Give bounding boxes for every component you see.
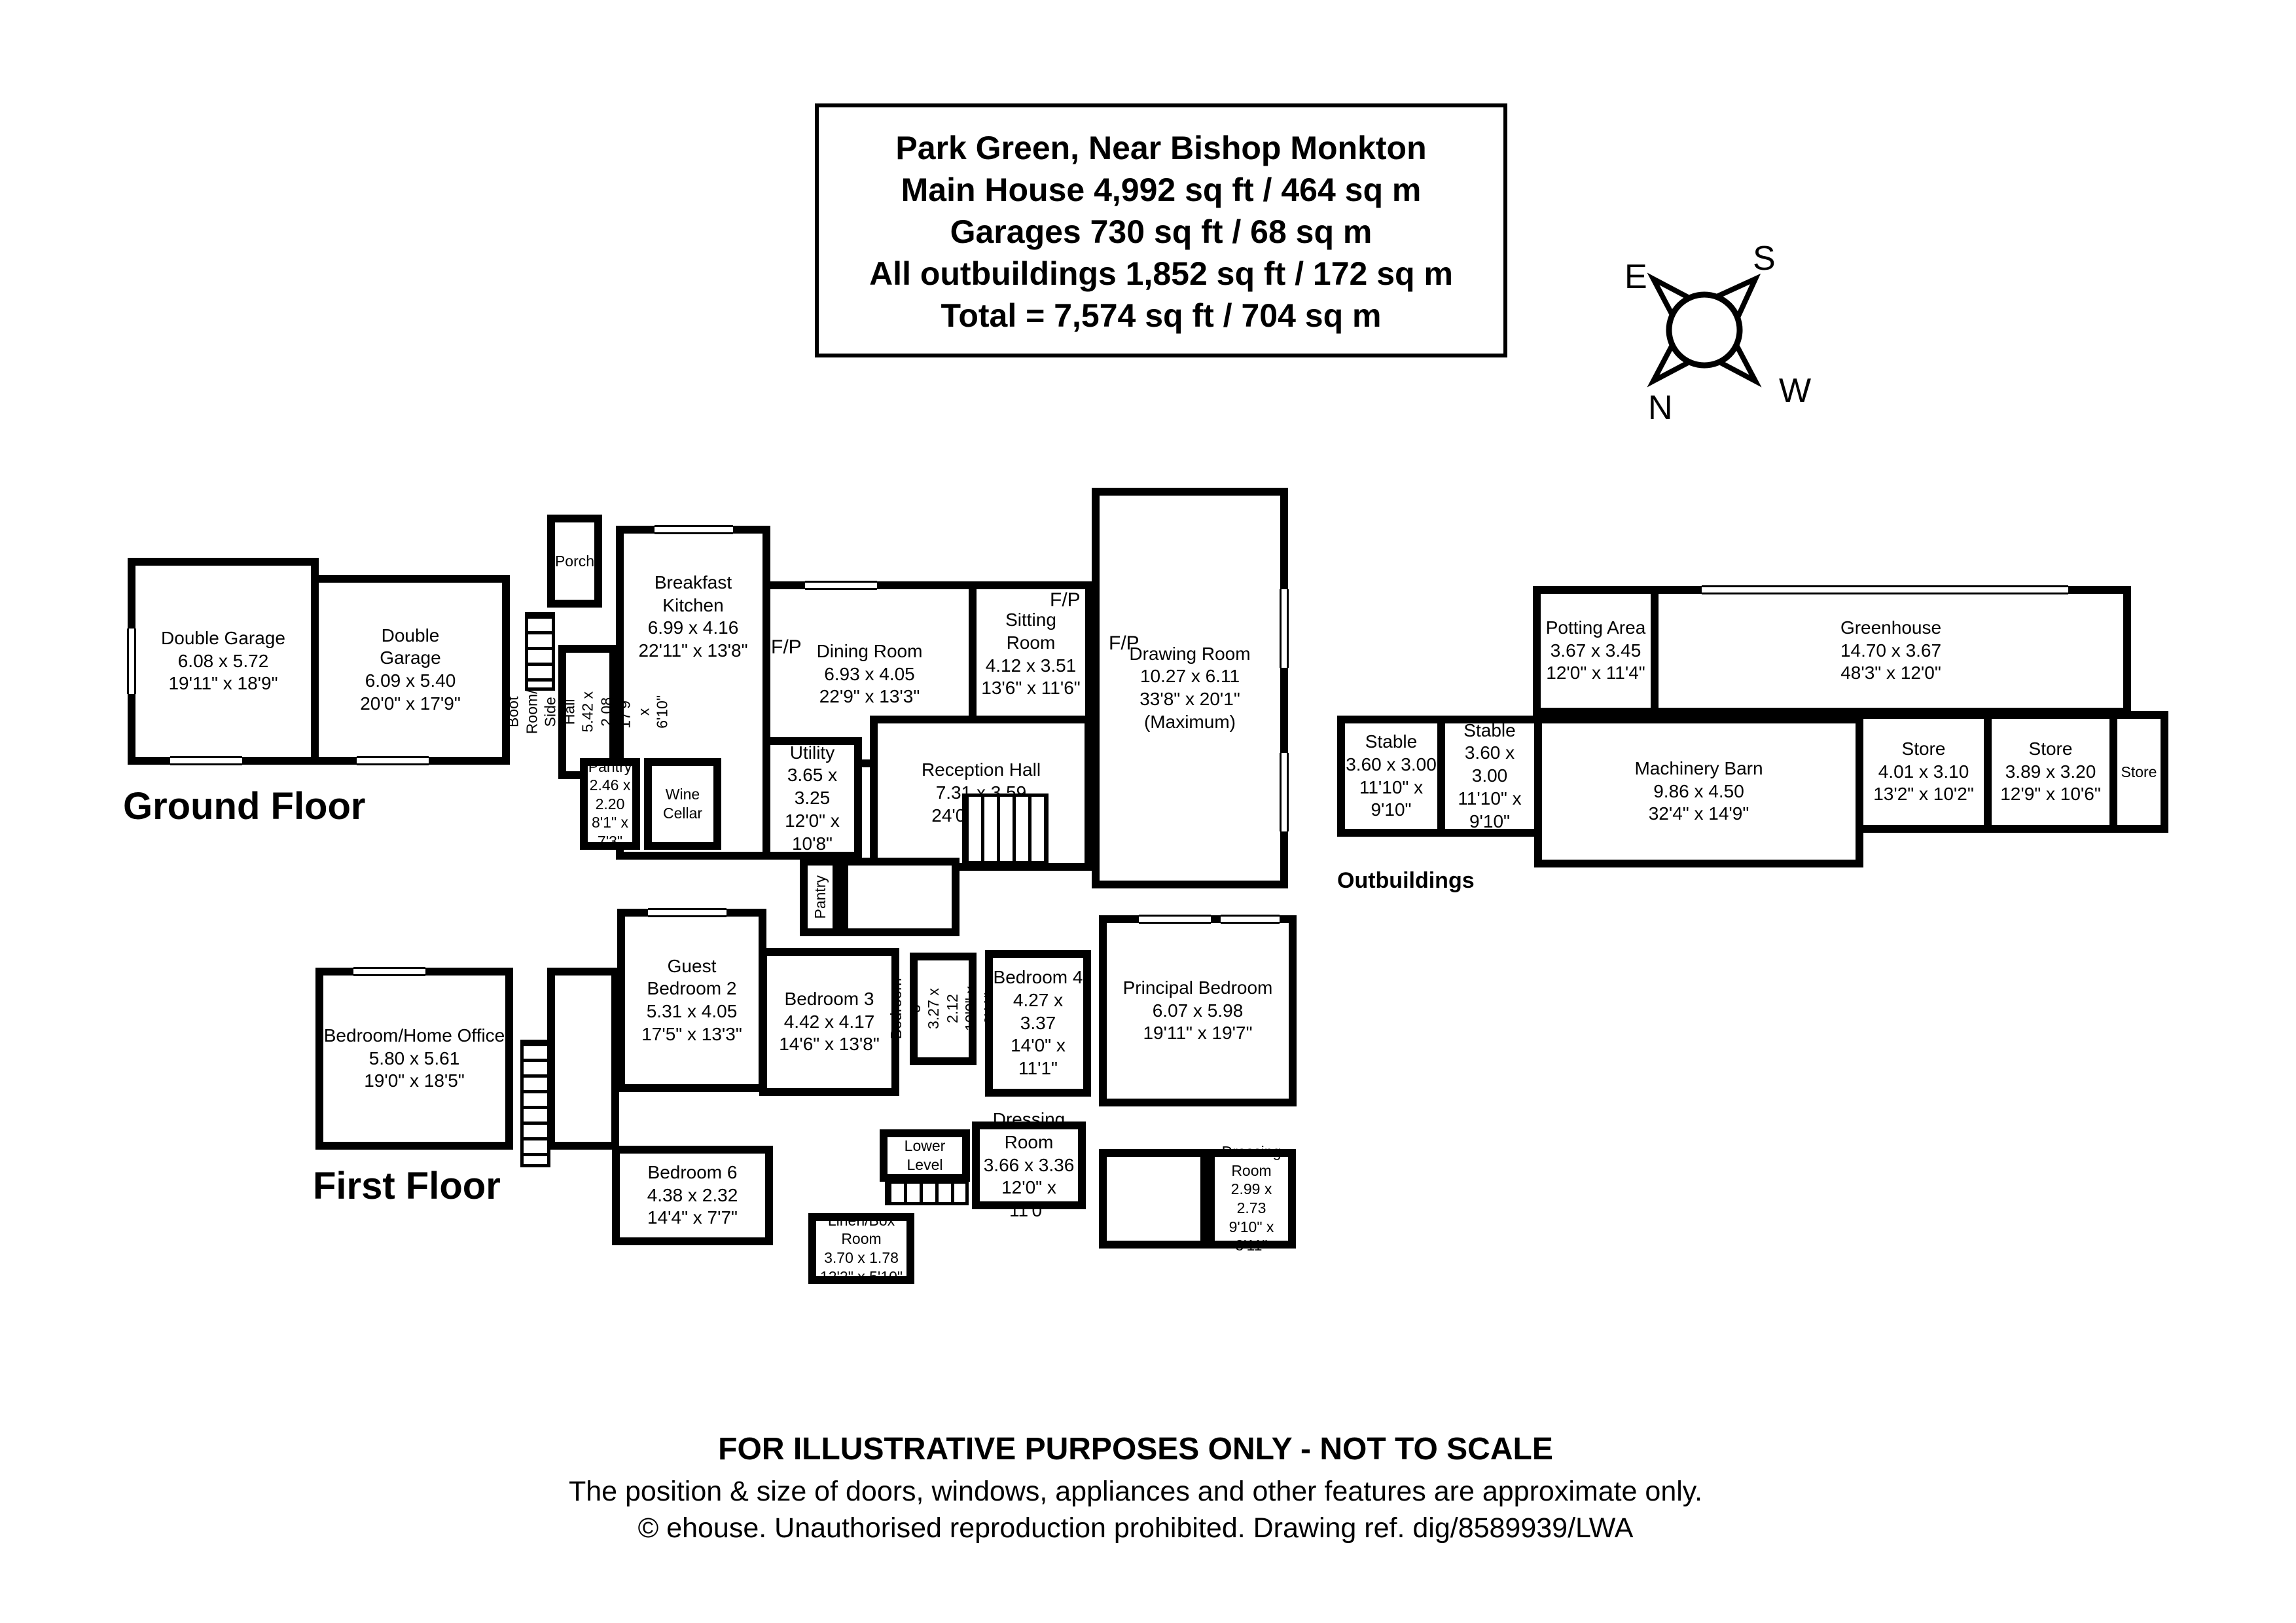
window xyxy=(1702,585,2068,594)
staircase xyxy=(525,612,555,691)
compass-west-label: W xyxy=(1779,372,1811,410)
room-dim-metric: 2.46 x 2.20 xyxy=(588,776,632,813)
room-bedroom-3: Bedroom 3 4.42 x 4.17 14'6" x 13'8" xyxy=(759,948,899,1096)
room-dim-metric: 5.80 x 5.61 xyxy=(324,1048,505,1070)
staircase xyxy=(520,1040,550,1167)
room-name: Linen/Box Room xyxy=(816,1211,906,1249)
window xyxy=(805,581,877,590)
room-stable-1: Stable 3.60 x 3.00 11'10" x 9'10" xyxy=(1337,716,1445,837)
room-dim-metric: 6.93 x 4.05 xyxy=(817,663,923,686)
room-bedroom-6: Bedroom 6 4.38 x 2.32 14'4" x 7'7" xyxy=(612,1146,773,1245)
first-floor-label: First Floor xyxy=(313,1164,501,1208)
fireplace-label: F/P xyxy=(771,636,802,659)
room-dressing-room-2: Dressing Room 2.99 x 2.73 9'10" x 8'11" xyxy=(1207,1149,1296,1249)
room-name: Store xyxy=(1873,738,1974,761)
room-utility: Utility 3.65 x 3.25 12'0" x 10'8" xyxy=(762,737,862,860)
room-bathroom xyxy=(547,968,619,1150)
room-dim-imperial: 11'10" x 9'10" xyxy=(1345,776,1437,822)
room-ensuite xyxy=(1099,1149,1208,1249)
room-dim-imperial: 12'9" x 10'6" xyxy=(2000,783,2101,806)
outbuildings-area: All outbuildings 1,852 sq ft / 172 sq m xyxy=(819,253,1503,295)
room-name: Dressing Room xyxy=(980,1108,1078,1154)
window xyxy=(1280,753,1289,831)
room-principal-bedroom: Principal Bedroom 6.07 x 5.98 19'11" x 1… xyxy=(1099,915,1297,1106)
room-dim-metric: 4.42 x 4.17 xyxy=(779,1011,880,1034)
room-dim-metric: 6.08 x 5.72 xyxy=(161,650,285,673)
room-dim-imperial: 14'4" x 7'7" xyxy=(647,1207,738,1230)
room-pantry-2: Pantry xyxy=(800,858,840,936)
room-dressing-room-1: Dressing Room 3.66 x 3.36 12'0" x 11'0" xyxy=(972,1122,1086,1209)
room-dim-metric: 4.01 x 3.10 xyxy=(1873,761,1974,784)
compass-north-label: N xyxy=(1648,389,1673,427)
footer-disclaimer-line1: FOR ILLUSTRATIVE PURPOSES ONLY - NOT TO … xyxy=(0,1431,2271,1467)
room-name: Boot Room/ Side Hall xyxy=(504,690,579,735)
room-greenhouse: Greenhouse 14.70 x 3.67 48'3" x 12'0" xyxy=(1651,586,2131,716)
room-name: Bedroom 4 xyxy=(993,966,1083,989)
room-name: Bedroom 6 xyxy=(647,1161,738,1184)
room-name: Pantry xyxy=(811,875,830,919)
room-dim-imperial: 12'2" x 5'10" xyxy=(816,1267,906,1286)
room-dim-imperial: 19'11" x 18'9" xyxy=(161,672,285,695)
room-dim-metric: 5.42 x 2.08 xyxy=(579,690,616,735)
room-name: Breakfast Kitchen xyxy=(624,572,762,617)
room-dim-metric: 5.31 x 4.05 xyxy=(641,1000,742,1023)
total-area: Total = 7,574 sq ft / 704 sq m xyxy=(819,295,1503,337)
room-name: Principal Bedroom xyxy=(1123,977,1273,1000)
room-name: Guest Bedroom 2 xyxy=(641,955,742,1000)
room-dim-imperial: 17'5" x 13'3" xyxy=(641,1023,742,1046)
window xyxy=(655,525,733,534)
window xyxy=(1280,589,1289,668)
room-name: Sitting Room xyxy=(981,609,1080,654)
plan-title: Park Green, Near Bishop Monkton xyxy=(819,127,1503,169)
room-double-garage-1: Double Garage 6.08 x 5.72 19'11" x 18'9" xyxy=(128,558,319,765)
room-bedroom-4: Bedroom 4 4.27 x 3.37 14'0" x 11'1" xyxy=(985,950,1091,1097)
room-dim-imperial: 22'9" x 13'3" xyxy=(817,685,923,708)
window xyxy=(1139,915,1211,924)
room-double-garage-2: Double Garage 6.09 x 5.40 20'0" x 17'9" xyxy=(311,575,510,765)
ground-floor-label: Ground Floor xyxy=(123,784,366,828)
room-name: Bedroom 5 xyxy=(887,978,924,1039)
room-name: Utility xyxy=(770,742,854,765)
room-dim-metric: 6.99 x 4.16 xyxy=(624,617,762,640)
room-name: Porch xyxy=(555,552,594,571)
room-dim-metric: 3.70 x 1.78 xyxy=(816,1249,906,1267)
room-dim-imperial: 9'10" x 8'11" xyxy=(1215,1218,1288,1255)
room-dim-imperial: 22'11" x 13'8" xyxy=(624,640,762,663)
room-name: Lower Level xyxy=(905,1137,946,1174)
room-name: Bedroom 3 xyxy=(779,988,880,1011)
window xyxy=(357,756,429,765)
room-dim-note: (Maximum) xyxy=(1129,711,1250,734)
room-dim-metric: 3.66 x 3.36 xyxy=(980,1154,1078,1177)
room-dim-imperial: 14'0" x 11'1" xyxy=(993,1034,1083,1080)
floorplan-canvas: Park Green, Near Bishop Monkton Main Hou… xyxy=(0,0,2296,1623)
room-dim-metric: 3.60 x 3.00 xyxy=(1445,742,1534,787)
room-bedroom-home-office: Bedroom/Home Office 5.80 x 5.61 19'0" x … xyxy=(315,968,513,1150)
footer-disclaimer-line2: The position & size of doors, windows, a… xyxy=(0,1476,2271,1508)
window xyxy=(1221,915,1280,924)
window xyxy=(127,629,136,694)
room-linen-box-room: Linen/Box Room 3.70 x 1.78 12'2" x 5'10" xyxy=(808,1213,914,1284)
room-name: Dressing Room xyxy=(1215,1142,1288,1180)
staircase xyxy=(962,793,1049,864)
room-bedroom-5: Bedroom 5 3.27 x 2.12 10'9" x 6'11" xyxy=(910,953,977,1065)
compass-south-label: S xyxy=(1753,240,1776,278)
fireplace-label: F/P xyxy=(1050,589,1081,611)
room-dim-imperial: 33'8" x 20'1" xyxy=(1129,688,1250,711)
room-name: Double Garage xyxy=(360,625,461,670)
room-name: Machinery Barn xyxy=(1634,757,1763,780)
garages-area: Garages 730 sq ft / 68 sq m xyxy=(819,211,1503,253)
room-name: Store xyxy=(2000,738,2101,761)
window xyxy=(170,756,242,765)
room-dim-metric: 14.70 x 3.67 xyxy=(1840,640,1941,663)
main-house-area: Main House 4,992 sq ft / 464 sq m xyxy=(819,169,1503,211)
room-dim-imperial: 48'3" x 12'0" xyxy=(1840,662,1941,685)
room-name: Greenhouse xyxy=(1840,617,1941,640)
room-dim-imperial: 12'0" x 10'8" xyxy=(770,810,854,855)
title-box: Park Green, Near Bishop Monkton Main Hou… xyxy=(815,103,1507,357)
compass-rose-icon: E S N W xyxy=(1610,223,1820,432)
room-name: Store xyxy=(2121,763,2157,782)
room-dim-imperial: 11'10" x 9'10" xyxy=(1445,788,1534,833)
room-name: Double Garage xyxy=(161,627,285,650)
room-drawing-room: Drawing Room 10.27 x 6.11 33'8" x 20'1" … xyxy=(1092,488,1288,888)
room-dim-metric: 6.07 x 5.98 xyxy=(1123,1000,1273,1023)
footer-copyright-line: © ehouse. Unauthorised reproduction proh… xyxy=(0,1512,2271,1544)
room-pantry-1: Pantry 2.46 x 2.20 8'1" x 7'3" xyxy=(580,758,640,850)
room-name: Wine Cellar xyxy=(663,785,702,822)
room-name: Stable xyxy=(1345,731,1437,754)
room-dim-metric: 6.09 x 5.40 xyxy=(360,670,461,693)
room-dim-metric: 3.27 x 2.12 xyxy=(924,978,961,1039)
room-dim-metric: 4.27 x 3.37 xyxy=(993,989,1083,1034)
room-wc xyxy=(840,858,960,936)
room-dim-imperial: 12'0" x 11'4" xyxy=(1546,662,1646,685)
room-dim-metric: 3.67 x 3.45 xyxy=(1546,640,1646,663)
fireplace-label: F/P xyxy=(1109,632,1139,655)
room-potting-area: Potting Area 3.67 x 3.45 12'0" x 11'4" xyxy=(1533,586,1659,716)
staircase xyxy=(885,1180,969,1205)
room-dim-imperial: 17'9" x 6'10" xyxy=(616,690,672,735)
room-dim-imperial: 32'4" x 14'9" xyxy=(1634,803,1763,826)
room-dim-imperial: 20'0" x 17'9" xyxy=(360,693,461,716)
room-dim-metric: 3.89 x 3.20 xyxy=(2000,761,2101,784)
room-dim-metric: 2.99 x 2.73 xyxy=(1215,1180,1288,1217)
room-store-3: Store xyxy=(2109,711,2168,833)
room-name: Drawing Room xyxy=(1129,643,1250,666)
room-machinery-barn: Machinery Barn 9.86 x 4.50 32'4" x 14'9" xyxy=(1534,716,1863,867)
compass-east-label: E xyxy=(1624,258,1647,296)
room-name: Bedroom/Home Office xyxy=(324,1025,505,1048)
room-dim-metric: 9.86 x 4.50 xyxy=(1634,780,1763,803)
room-dim-metric: 4.38 x 2.32 xyxy=(647,1184,738,1207)
room-dim-metric: 3.65 x 3.25 xyxy=(770,764,854,809)
room-name: Potting Area xyxy=(1546,617,1646,640)
room-dim-imperial: 19'0" x 18'5" xyxy=(324,1070,505,1093)
room-dim-metric: 3.60 x 3.00 xyxy=(1345,754,1437,776)
room-porch: Porch xyxy=(547,515,602,608)
room-guest-bedroom-2: Guest Bedroom 2 5.31 x 4.05 17'5" x 13'3… xyxy=(617,909,766,1092)
room-dim-imperial: 19'11" x 19'7" xyxy=(1123,1022,1273,1045)
room-store-1: Store 4.01 x 3.10 13'2" x 10'2" xyxy=(1856,711,1992,833)
room-dim-metric: 4.12 x 3.51 xyxy=(981,655,1080,678)
room-wine-cellar: Wine Cellar xyxy=(644,758,721,850)
room-dim-imperial: 12'0" x 11'0" xyxy=(980,1176,1078,1222)
room-dim-metric: 10.27 x 6.11 xyxy=(1129,665,1250,688)
outbuildings-label: Outbuildings xyxy=(1337,868,1475,894)
room-dim-imperial: 14'6" x 13'8" xyxy=(779,1033,880,1056)
room-name: Pantry xyxy=(588,757,632,776)
room-name: Reception Hall xyxy=(922,759,1041,782)
window xyxy=(353,967,425,976)
room-dim-imperial: 8'1" x 7'3" xyxy=(588,813,632,850)
room-name: Stable xyxy=(1445,720,1534,742)
room-name: Dining Room xyxy=(817,640,923,663)
room-lower-level: Lower Level xyxy=(880,1129,970,1182)
room-store-2: Store 3.89 x 3.20 12'9" x 10'6" xyxy=(1984,711,2117,833)
room-dim-imperial: 13'6" x 11'6" xyxy=(981,677,1080,700)
window xyxy=(648,908,726,917)
room-dim-imperial: 13'2" x 10'2" xyxy=(1873,783,1974,806)
room-stable-2: Stable 3.60 x 3.00 11'10" x 9'10" xyxy=(1437,716,1542,837)
